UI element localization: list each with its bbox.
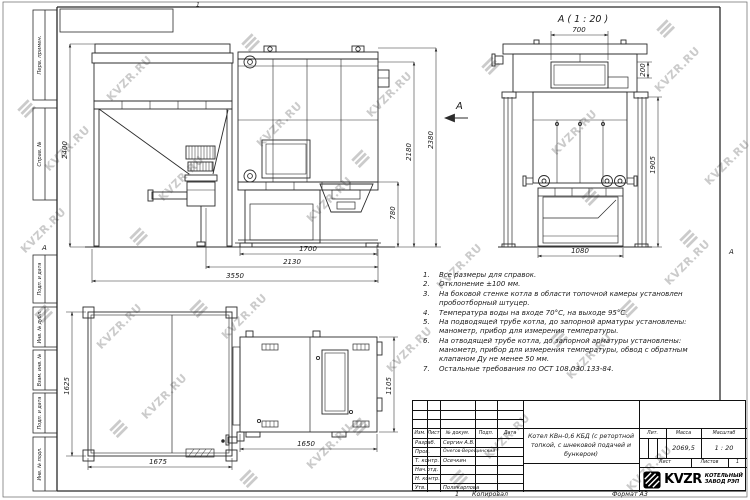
sheets-label: Листов bbox=[691, 458, 728, 467]
role-label: Пров. bbox=[413, 447, 440, 456]
note-item: На боковой стенке котла в области топочн… bbox=[423, 290, 715, 309]
role-label: Т. контр. bbox=[413, 456, 440, 465]
title-block: Изм. Лист № докум. Подп. Дата Разраб. Се… bbox=[412, 400, 746, 491]
note-item: Температура воды на входе 70°С, на выход… bbox=[423, 309, 715, 318]
role-label: Утв. bbox=[413, 483, 440, 492]
role-label: Разраб. bbox=[413, 438, 440, 447]
note-item: Все размеры для справок. bbox=[423, 271, 715, 280]
col-header-doc: № докум. bbox=[440, 428, 475, 438]
role-name: Сергин А.В. bbox=[441, 438, 497, 447]
role-label: Нач.отд. bbox=[413, 465, 440, 474]
kvzr-logo-icon bbox=[643, 471, 661, 489]
document-title: Котел КВн-0,6 КБД (с ретортной топкой, с… bbox=[525, 429, 637, 462]
role-label: Н. контр. bbox=[413, 474, 440, 483]
copied-label: Копировал bbox=[472, 491, 508, 498]
bottom-sheet-mark: 1 bbox=[455, 491, 459, 498]
format-label: Формат А3 bbox=[612, 491, 648, 498]
note-item: Отклонение ±100 мм. bbox=[423, 280, 715, 289]
note-item: На подводящей трубе котла, до запорной а… bbox=[423, 318, 715, 337]
col-header-date: Дата bbox=[497, 428, 523, 438]
note-item: Остальные требования по ОСТ 108.030.133-… bbox=[423, 365, 715, 374]
role-name: Осечкин bbox=[441, 456, 497, 465]
scale-value: 1 : 20 bbox=[701, 438, 747, 458]
col-header-list: Лист bbox=[427, 428, 440, 438]
drawing-sheet: KVZR.RUKVZR.RUKVZR.RUKVZR.RUKVZR.RUKVZR.… bbox=[0, 0, 750, 500]
note-item: На отводящей трубе котла, до запорной ар… bbox=[423, 337, 715, 365]
company-logo-block: KVZR КОТЕЛЬНЫЙ ЗАВОД РЭП bbox=[639, 467, 747, 492]
role-name bbox=[441, 465, 497, 474]
mass-value: 2069,5 bbox=[666, 438, 701, 458]
company-name-line2: ЗАВОД РЭП bbox=[705, 480, 743, 486]
col-header-sign: Подп. bbox=[475, 428, 497, 438]
role-name bbox=[441, 474, 497, 483]
col-header-izm: Изм. bbox=[413, 428, 427, 438]
sheets-value: 1 bbox=[728, 458, 747, 467]
scale-label: Масштаб bbox=[701, 428, 747, 438]
mass-label: Масса bbox=[666, 428, 701, 438]
notes-list: Все размеры для справок. Отклонение ±100… bbox=[423, 271, 715, 374]
role-name: Онегов-Верещинский bbox=[441, 447, 497, 456]
logo-wordmark: KVZR bbox=[664, 472, 702, 487]
sheet-label: Лист bbox=[639, 458, 691, 467]
lit-label: Лит. bbox=[639, 428, 666, 438]
